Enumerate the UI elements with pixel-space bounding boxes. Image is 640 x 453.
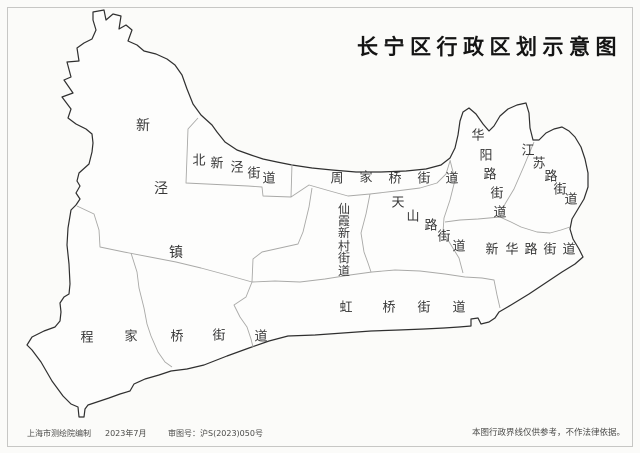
map-page: 长宁区行政区划示意图 新泾镇北新泾街道周家桥街道仙霞新村街道天山路街道华阳路街道… (0, 0, 640, 453)
approval-number: 审图号：沪S(2023)050号 (168, 428, 263, 439)
xinhua-road-subdistrict-label: 道 (562, 244, 575, 257)
zhoujiaqiao-subdistrict-label: 街 (417, 173, 430, 186)
xianxia-xincun-subdistrict-label: 新 (338, 227, 350, 239)
jiangsu-road-subdistrict-label: 道 (564, 194, 577, 207)
huayang-road-subdistrict-label: 道 (493, 207, 506, 220)
zhoujiaqiao-subdistrict-label: 家 (359, 172, 372, 185)
tianshan-road-subdistrict-label: 天 (391, 197, 404, 210)
beixinjing-subdistrict-label: 街 (247, 168, 260, 181)
xinjing-town-label: 新 (136, 119, 150, 133)
huayang-road-subdistrict-label: 路 (483, 169, 496, 182)
chengjiaqiao-subdistrict-label: 程 (80, 332, 93, 345)
tianshan-road-subdistrict-label: 道 (452, 241, 465, 254)
xinhua-road-subdistrict-label: 新 (485, 244, 498, 257)
publisher-credit: 上海市测绘院编制 (27, 429, 91, 438)
chengjiaqiao-subdistrict-label: 家 (124, 331, 137, 344)
beixinjing-subdistrict-label: 道 (262, 173, 275, 186)
tianshan-road-subdistrict-label: 山 (406, 211, 419, 224)
hongqiao-subdistrict-label: 虹 (339, 302, 352, 315)
hongqiao-subdistrict-label: 桥 (382, 302, 395, 315)
zhoujiaqiao-subdistrict-label: 周 (330, 173, 343, 186)
chengjiaqiao-subdistrict-label: 桥 (170, 331, 183, 344)
tianshan-road-subdistrict-label: 路 (424, 220, 437, 233)
disclaimer-text: 本图行政界线仅供参考，不作法律依据。 (472, 426, 625, 438)
xinhua-road-subdistrict-label: 街 (543, 244, 556, 257)
huayang-road-subdistrict-label: 街 (490, 188, 503, 201)
xinhua-road-subdistrict-label: 华 (505, 244, 518, 257)
publish-date: 2023年7月 (105, 429, 146, 438)
hongqiao-subdistrict-label: 街 (417, 302, 430, 315)
xinjing-town-label: 镇 (169, 246, 183, 260)
chengjiaqiao-subdistrict-label: 道 (254, 331, 267, 344)
hongqiao-subdistrict-label: 道 (452, 302, 465, 315)
beixinjing-subdistrict-label: 北 (192, 155, 205, 168)
zhoujiaqiao-subdistrict-label: 道 (445, 173, 458, 186)
xinhua-road-subdistrict-label: 路 (524, 244, 537, 257)
chengjiaqiao-subdistrict-label: 街 (212, 330, 225, 343)
xianxia-xincun-subdistrict-label: 道 (338, 265, 350, 277)
xianxia-xincun-subdistrict-label: 街 (338, 252, 350, 264)
huayang-road-subdistrict-label: 华 (471, 130, 484, 143)
xinjing-town-label: 泾 (154, 182, 168, 196)
zhoujiaqiao-subdistrict-label: 桥 (388, 173, 401, 186)
huayang-road-subdistrict-label: 阳 (479, 150, 492, 163)
region-labels: 新泾镇北新泾街道周家桥街道仙霞新村街道天山路街道华阳路街道江苏路街道新华路街道虹… (0, 0, 640, 453)
beixinjing-subdistrict-label: 新 (210, 158, 223, 171)
tianshan-road-subdistrict-label: 街 (437, 231, 450, 244)
footer-credit: 上海市测绘院编制2023年7月 (27, 428, 146, 439)
beixinjing-subdistrict-label: 泾 (230, 162, 243, 175)
